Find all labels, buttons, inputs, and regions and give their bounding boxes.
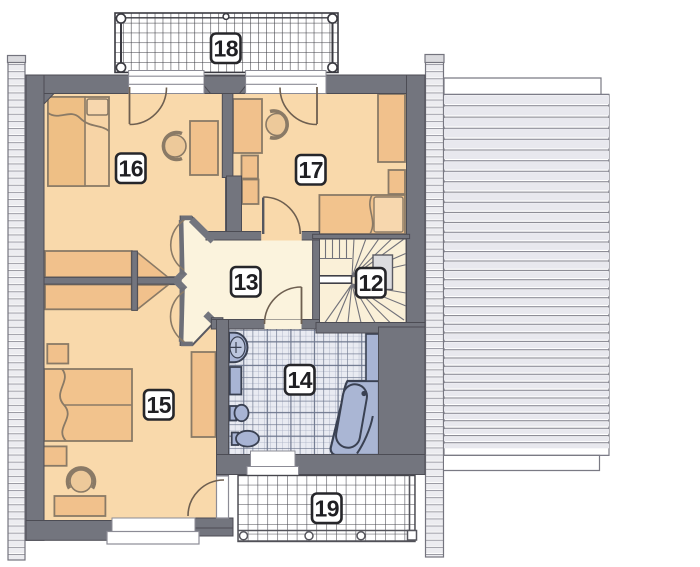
- svg-text:17: 17: [299, 157, 324, 183]
- svg-text:15: 15: [147, 392, 172, 418]
- svg-text:18: 18: [214, 36, 239, 62]
- svg-text:12: 12: [359, 270, 384, 296]
- svg-text:13: 13: [234, 269, 259, 295]
- svg-text:14: 14: [288, 367, 313, 393]
- svg-text:16: 16: [119, 156, 144, 182]
- svg-text:19: 19: [315, 496, 340, 522]
